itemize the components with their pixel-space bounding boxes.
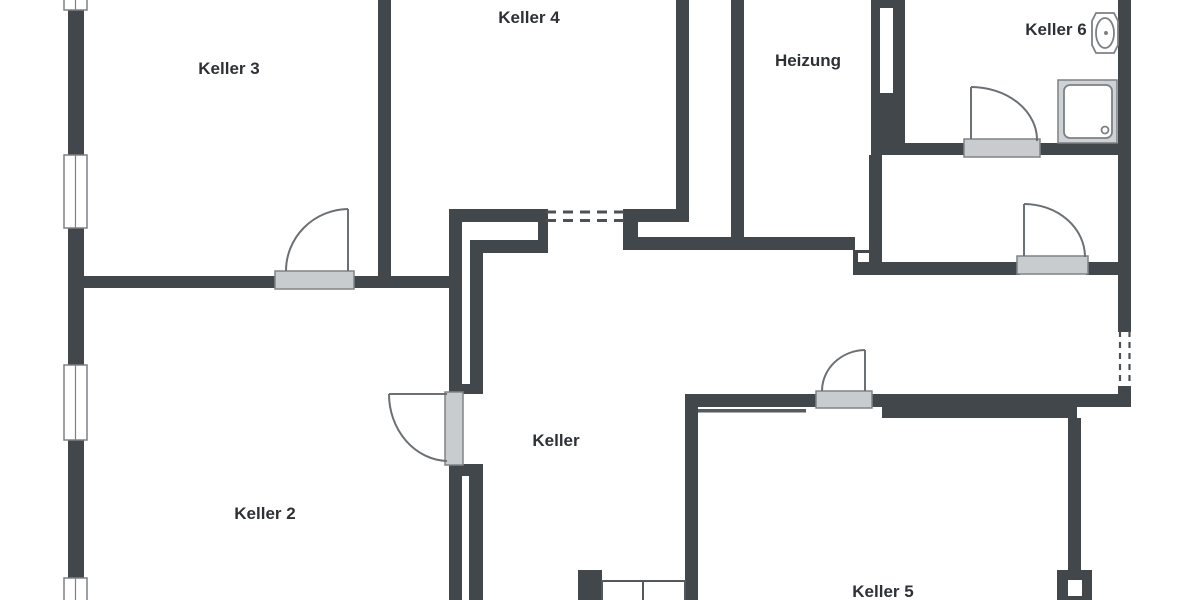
room-label-keller5: Keller 5 <box>852 582 913 600</box>
wall-keller5-left <box>685 394 698 600</box>
wall-double-lower-a <box>449 476 462 600</box>
door-arc <box>1024 204 1085 257</box>
room-label-keller6: Keller 6 <box>1025 20 1086 39</box>
wall-left-exterior <box>68 440 84 578</box>
door-threshold <box>964 139 1040 157</box>
wall-keller5-top <box>685 394 818 407</box>
door-threshold <box>1017 256 1088 274</box>
door-keller3 <box>275 209 354 289</box>
wall-keller4-right <box>676 0 689 222</box>
wall-double-lower-b <box>469 476 483 600</box>
room-label-keller3: Keller 3 <box>198 59 259 78</box>
wall-central-outer <box>449 209 462 394</box>
wall-keller4-bottom <box>449 209 548 222</box>
wall-cap-below-door <box>449 464 483 476</box>
wall-heizung-left <box>731 0 744 250</box>
wall-keller5-top <box>870 394 1131 407</box>
door-keller2 <box>389 392 463 465</box>
door-arc <box>389 394 447 461</box>
wall-keller6-bottom <box>871 143 966 155</box>
dashed-opening-icon <box>1120 331 1130 387</box>
room-label-heizung: Heizung <box>775 51 841 70</box>
wall-corridor-lower <box>1086 262 1120 275</box>
door-threshold <box>816 391 872 408</box>
shower-tray-icon <box>1058 80 1117 143</box>
window-icon <box>64 365 87 440</box>
door-keller6 <box>964 87 1040 157</box>
door-arc <box>971 87 1037 141</box>
wall-keller3-bottom <box>352 276 462 288</box>
room-labels: Keller 3 Keller 4 Heizung Keller 6 Kelle… <box>198 8 1086 600</box>
door-threshold <box>275 271 354 289</box>
room-label-keller: Keller <box>532 431 580 450</box>
dashed-opening-icon <box>546 212 625 221</box>
window-icon <box>64 155 87 228</box>
door-arc <box>822 350 865 391</box>
washbasin-icon <box>1092 13 1118 53</box>
wall-duct-slot <box>880 8 893 93</box>
wall-keller5-right <box>1068 418 1081 570</box>
chimney-block-icon <box>578 570 602 600</box>
window-icon <box>64 578 87 600</box>
wall-corridor-lower <box>858 262 1020 275</box>
wall-lintel-line <box>698 409 806 413</box>
stairs-icon <box>602 581 685 600</box>
wall-keller5-top-layer2 <box>882 407 1077 418</box>
door-keller5 <box>816 350 872 408</box>
door-corridor-room <box>1017 204 1088 274</box>
wall-opening-east-jog <box>623 209 638 250</box>
wall-keller4-left <box>378 0 391 277</box>
room-label-keller2: Keller 2 <box>234 504 295 523</box>
wall-central-inner <box>470 253 483 394</box>
pillar-void <box>1068 580 1082 596</box>
wall-heizung-right-lower <box>869 155 882 262</box>
wall-corridor-upper <box>636 237 855 250</box>
wall-central-inner-top <box>470 240 548 253</box>
room-label-keller4: Keller 4 <box>498 8 560 27</box>
wall-right-exterior <box>1118 0 1131 332</box>
floor-plan: Keller 3 Keller 4 Heizung Keller 6 Kelle… <box>0 0 1200 600</box>
wall-keller6-bottom <box>1039 143 1131 155</box>
door-threshold <box>445 392 463 465</box>
window-icon <box>64 0 87 10</box>
wall-left-exterior <box>68 10 84 155</box>
wall-connector <box>538 222 548 240</box>
wall-left-exterior <box>68 228 84 365</box>
door-arc <box>286 209 348 271</box>
wall-keller3-bottom <box>68 276 277 288</box>
